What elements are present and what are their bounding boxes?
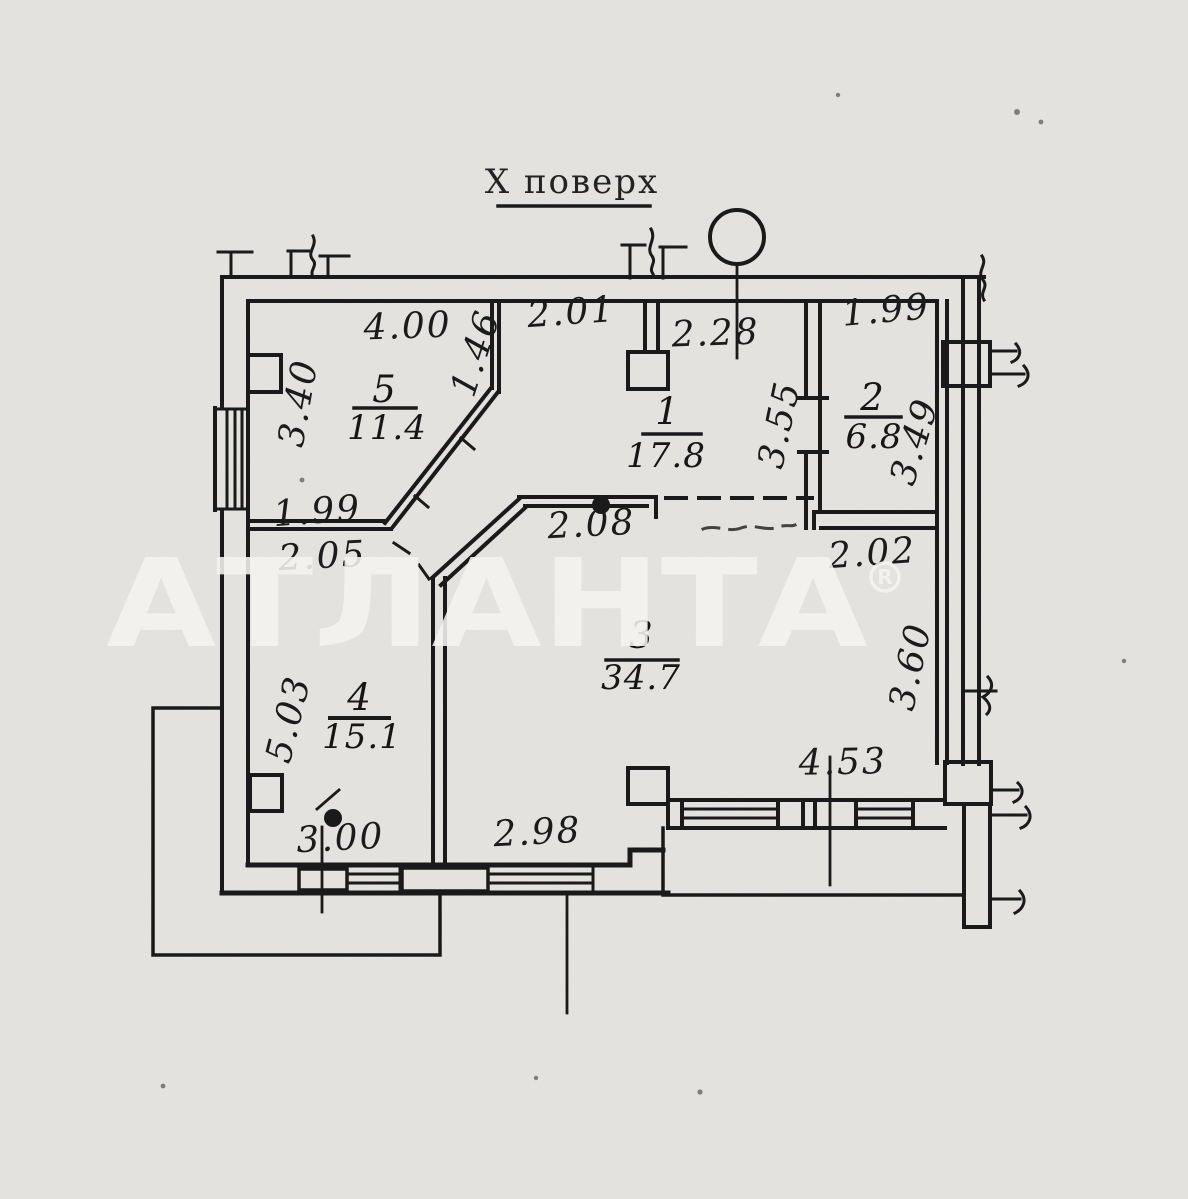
floor-plan-canvas: Х поверх 5 11.4 1 17.8 2 6.8 3 34.7 4 15…	[0, 0, 1188, 1199]
dim-room3-bottom-right: 4.53	[797, 741, 887, 784]
watermark-text: АТЛАНТА	[106, 533, 868, 675]
speck	[300, 478, 305, 483]
dim-room2-top: 1.99	[840, 286, 931, 335]
page-title: Х поверх	[485, 162, 659, 202]
watermark: АТЛАНТА R	[106, 533, 899, 675]
speck	[697, 1089, 702, 1094]
room4-number: 4	[346, 676, 371, 719]
dim-room5-top: 4.00	[362, 304, 453, 348]
registered-mark-letter: R	[877, 565, 892, 589]
speck	[1039, 120, 1044, 125]
speck	[534, 1076, 538, 1080]
room1-number: 1	[655, 390, 679, 433]
speck	[1014, 109, 1020, 115]
dim-room4-bottom: 3.00	[295, 816, 385, 862]
speck	[161, 1084, 166, 1089]
room5-number: 5	[372, 368, 396, 411]
speck	[836, 93, 840, 97]
speck	[1122, 659, 1126, 663]
dim-room3-bottom-left: 2.98	[491, 810, 582, 856]
room4-area: 15.1	[322, 717, 402, 757]
dim-room5-bottom: 1.99	[272, 488, 363, 535]
dim-room1-top-left: 2.01	[525, 289, 617, 336]
room5-area: 11.4	[347, 408, 427, 448]
room2-number: 2	[859, 376, 884, 419]
dim-room1-top-right: 2.28	[670, 311, 761, 355]
scanned-floor-plan-page: Х поверх 5 11.4 1 17.8 2 6.8 3 34.7 4 15…	[0, 0, 1188, 1199]
room1-area: 17.8	[626, 436, 706, 476]
